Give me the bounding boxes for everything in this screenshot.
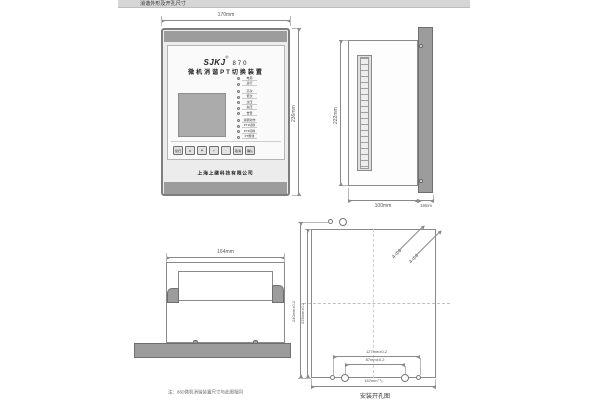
extension-line [284,253,285,262]
button-label: 取消 [235,148,241,153]
side-depth-dim-label: 100mm [348,203,418,209]
led-indicator [237,77,240,80]
company-name: 上海上继科技有限公司 [176,169,276,176]
top-front-panel-bar [134,343,291,358]
front-height-dim-line [298,28,299,196]
cutout-inner-span-dim-label: 87mm±0.2 [351,358,399,363]
extension-line [298,378,311,379]
led-row: 高次 [237,89,272,94]
extension-line [420,358,421,375]
lcd-screen [178,93,226,137]
extension-line [166,253,167,262]
keypad-separator [171,141,281,142]
led-row: 告警 [237,111,272,116]
led-indicator [237,130,240,133]
led-label: 过压 [242,101,257,104]
front-height-dim-label: 236mm [291,105,297,122]
extension-line [298,222,328,223]
button-label: 确认 [247,148,253,153]
led-row: 电源 [237,76,272,81]
led-indicator [237,119,240,122]
cutout-width-dim-label: 167mm⁺¹₀ [324,379,424,384]
led-indicator [237,136,240,139]
mounting-clip-left [167,288,179,303]
top-inner-outline [178,271,273,301]
led-indicator [237,107,240,110]
cutout-outer-span-dim-label: 127mm±0.2 [342,350,412,355]
led-indicator [237,101,240,104]
led-indicator [237,112,240,115]
led-label: PT1切换 [242,125,257,128]
cutout-caption: 安装开孔图 [340,391,410,400]
led-indicator [237,83,240,86]
plus-button: + [209,146,219,155]
mounting-clip-right [272,285,284,303]
led-label: 消谐动作 [242,119,257,122]
screw-icon [419,44,423,48]
horizontal-centerline [303,303,450,304]
led-row: 低次 [237,95,272,100]
cutout-inner-height-dim-line [307,229,308,378]
led-row: PT2切换 [237,129,272,134]
side-panel-dim-label: 19mm [411,203,442,208]
cutout-inner-height-dim-label: 225mm±0.2 [301,303,306,324]
brand-logo: SJKJ [204,58,226,67]
extension-line [290,16,291,26]
led-indicator [237,90,240,93]
down-button: ▼ [197,146,207,155]
led-row: PT断线 [237,135,272,140]
top-width-dim-line [166,257,285,258]
led-label: 高次 [242,90,257,93]
led-row: 运行 [237,82,272,87]
extension-line [161,16,162,26]
led-label: 失压 [242,107,257,110]
button-label: ▼ [201,149,204,152]
led-label: 低次 [242,96,257,99]
led-label: 电源 [242,77,257,80]
led-label: 告警 [242,112,257,115]
up-button: ▲ [185,146,195,155]
front-width-dim-label: 170mm [161,12,291,18]
drawing-note: 注：860微机消谐装置尺寸与此图相同 [168,388,243,395]
side-front-panel-plate [418,27,433,193]
front-top-bezel [164,31,287,42]
side-height-dim-label: 222mm [333,107,339,124]
mounting-hole-large [339,218,347,226]
drawing-canvas: 消谐外形及开孔尺寸 170mm SJKJ®870 微机消谐PT切换装置 电源 运… [0,0,600,400]
front-bottom-bezel [164,182,287,194]
front-width-dim-line [161,20,291,21]
screw-icon [419,179,423,183]
registered-mark: ® [226,55,229,60]
led-row: 过压 [237,100,272,105]
button-label: 复归 [175,148,181,153]
cutout-width-dim-line [311,386,436,387]
header-strip: 消谐外形及开孔尺寸 [118,0,470,8]
mounting-hole-small [328,219,333,224]
extension-line [333,358,334,375]
led-indicator [237,125,240,128]
button-label: ▲ [189,149,192,152]
led-label: PT2切换 [242,130,257,133]
device-title: 微机消谐PT切换装置 [167,67,285,76]
led-indicator [237,96,240,99]
reset-button: 复归 [173,146,183,155]
terminal-segments [360,57,369,169]
cutout-outer-height-dim-line [300,222,301,378]
side-panel-dim-line [418,200,434,201]
extension-line [405,366,406,374]
confirm-button: 确认 [245,146,255,155]
cutout-inner-span-dim-line [345,364,405,365]
led-row: 消谐动作 [237,118,272,123]
led-row: 失压 [237,106,272,111]
button-label: + [213,149,215,152]
side-height-dim-line [340,40,341,186]
led-label: 运行 [242,83,257,86]
minus-button: - [221,146,231,155]
top-width-dim-label: 164mm [166,249,285,255]
side-depth-dim-line [348,200,418,201]
cancel-button: 取消 [233,146,243,155]
button-label: - [226,149,227,152]
led-label: PT断线 [242,136,257,139]
page-title: 消谐外形及开孔尺寸 [140,2,186,8]
extension-line [345,366,346,374]
led-row: PT1切换 [237,124,272,129]
cutout-outer-height-dim-label: 240mm±0.2 [292,301,297,322]
